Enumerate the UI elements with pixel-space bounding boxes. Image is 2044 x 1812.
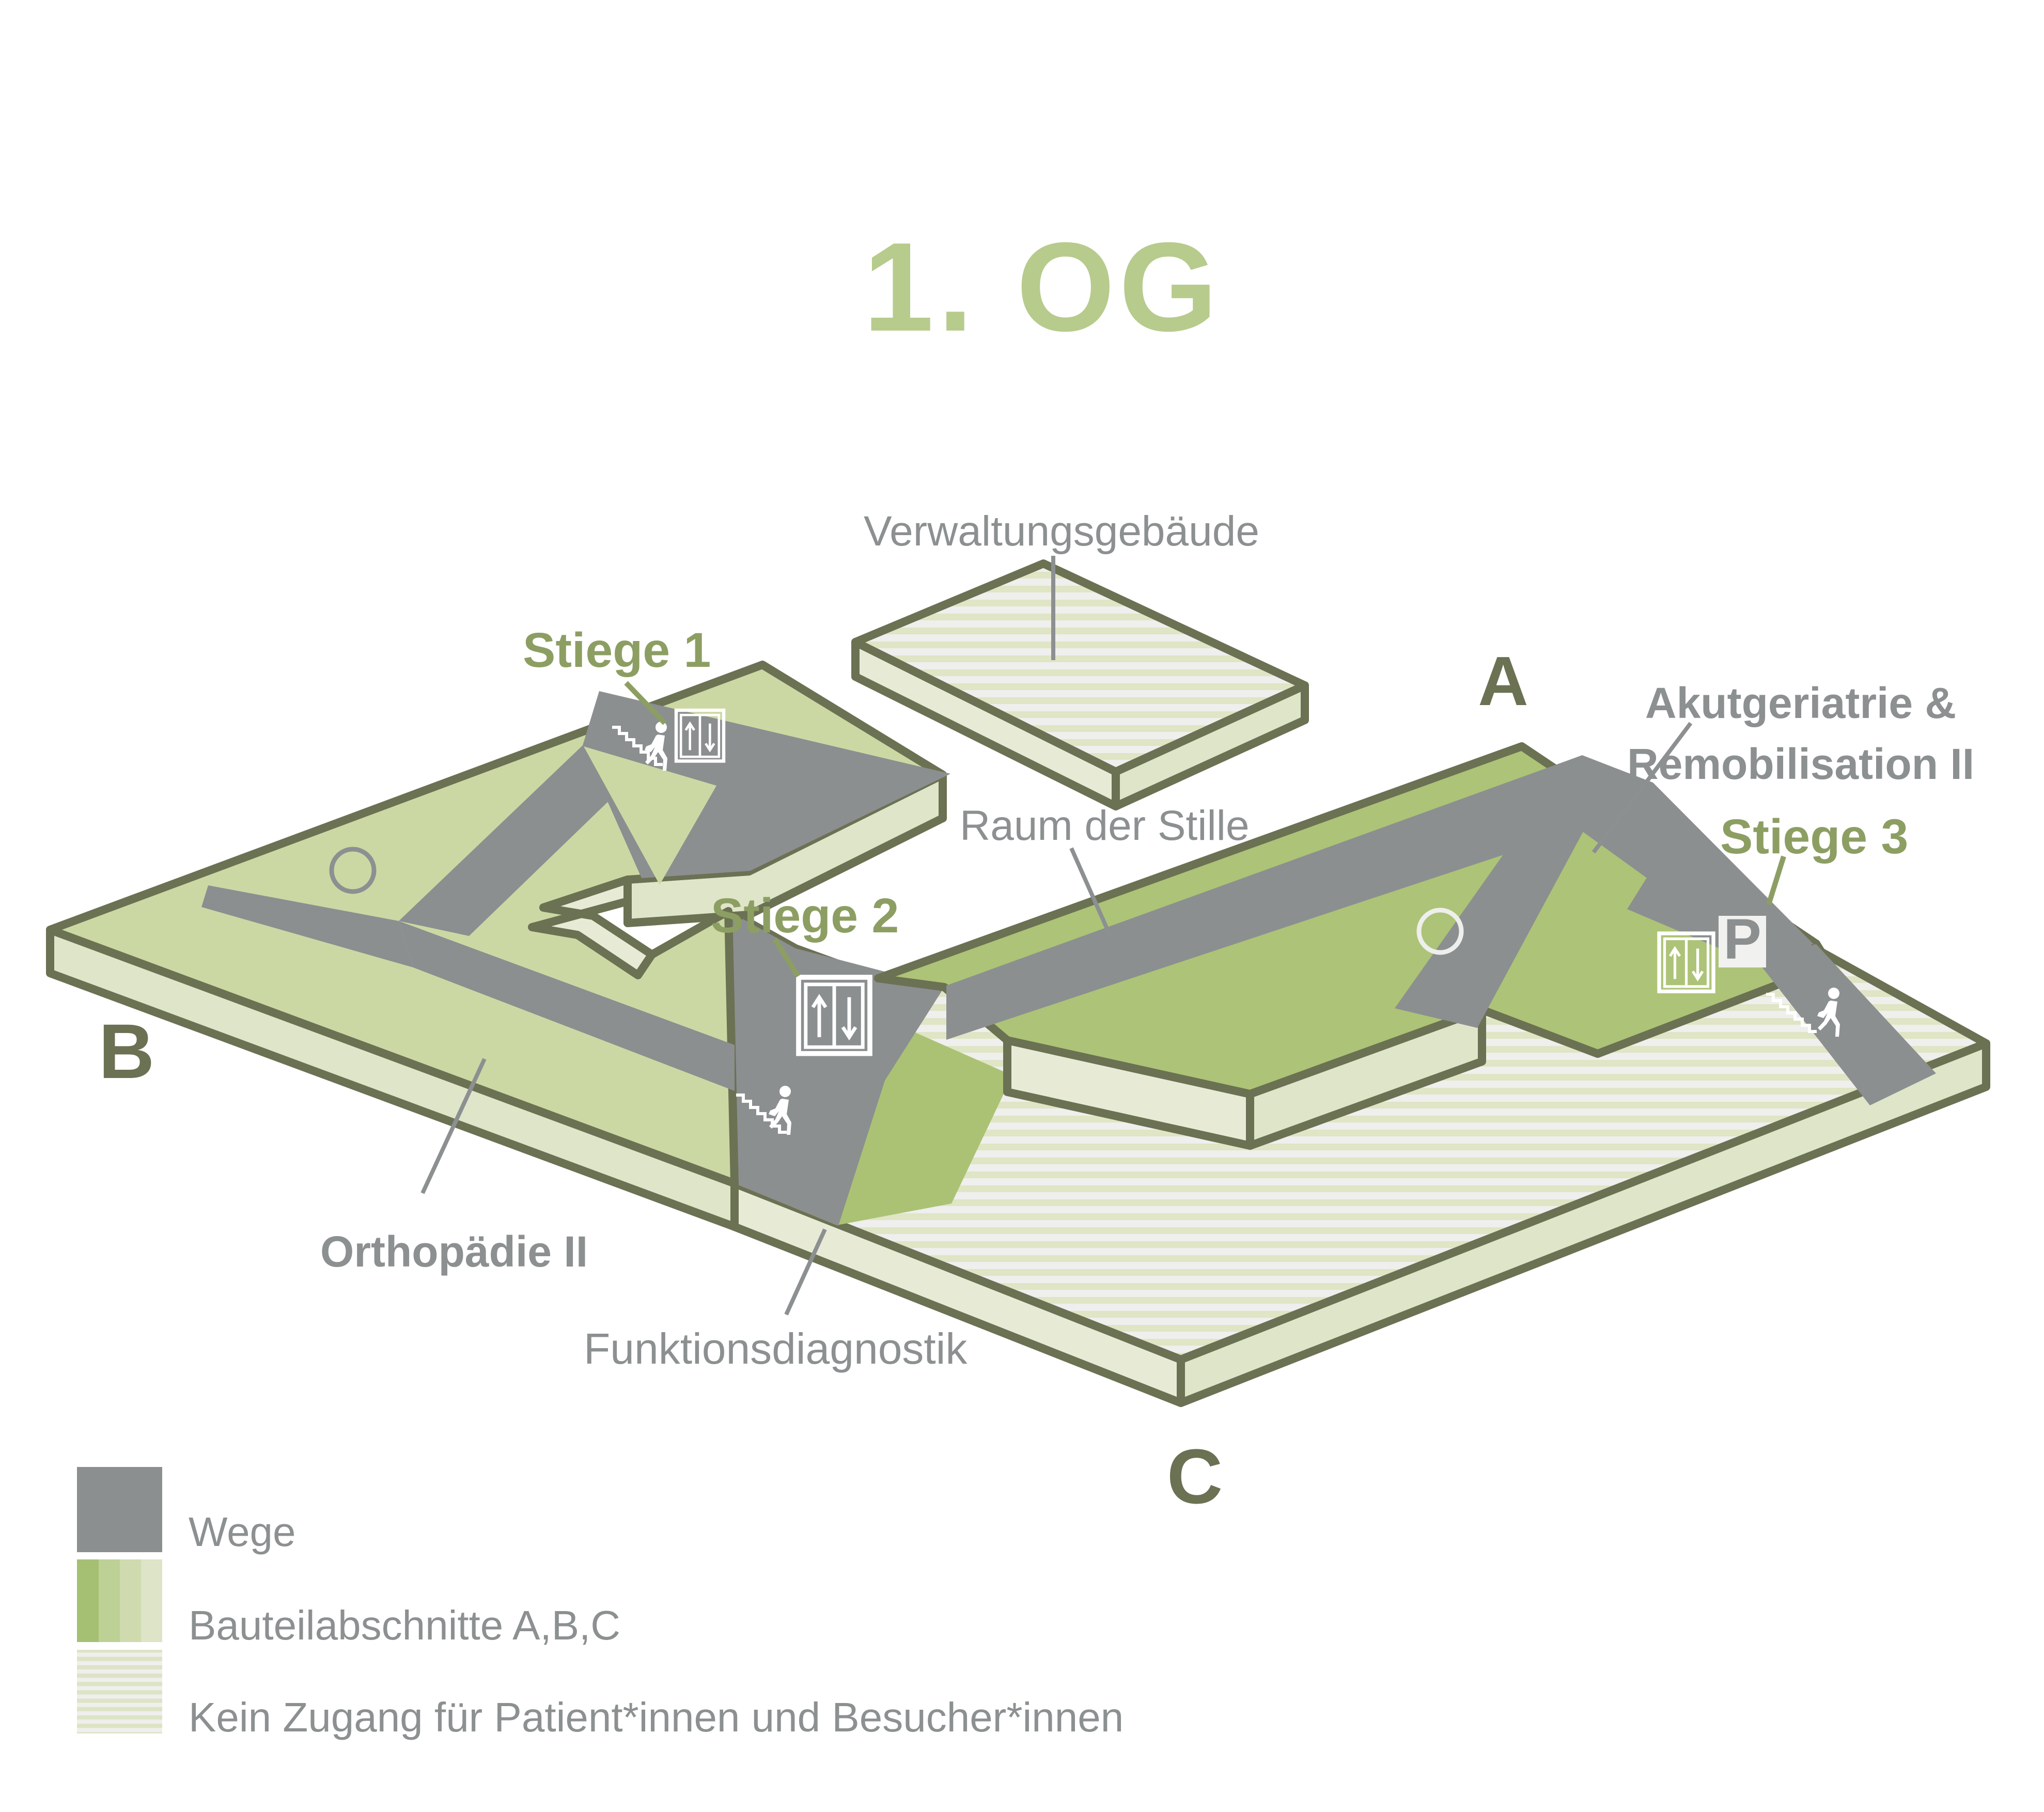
svg-text:1. OG: 1. OG [863,216,1222,357]
svg-text:Stiege 3: Stiege 3 [1720,809,1908,864]
svg-text:P: P [1723,908,1761,971]
svg-text:Remobilisation II: Remobilisation II [1627,740,1974,788]
svg-text:Kein Zugang für Patient*innen: Kein Zugang für Patient*innen und Besuch… [189,1694,1124,1740]
svg-text:B: B [99,1008,154,1095]
svg-text:Raum der Stille: Raum der Stille [960,802,1250,849]
svg-text:Stiege 1: Stiege 1 [523,623,711,678]
svg-text:Akutgeriatrie &: Akutgeriatrie & [1645,679,1956,727]
svg-text:Wege: Wege [189,1509,296,1555]
svg-text:Stiege 2: Stiege 2 [711,888,899,943]
svg-text:Verwaltungsgebäude: Verwaltungsgebäude [864,508,1259,555]
svg-text:C: C [1167,1433,1223,1520]
svg-text:Funktionsdiagnostik: Funktionsdiagnostik [584,1324,968,1373]
svg-text:Orthopädie II: Orthopädie II [320,1227,588,1276]
svg-text:A: A [1478,642,1528,720]
svg-text:Bauteilabschnitte A,B,C: Bauteilabschnitte A,B,C [189,1602,620,1648]
